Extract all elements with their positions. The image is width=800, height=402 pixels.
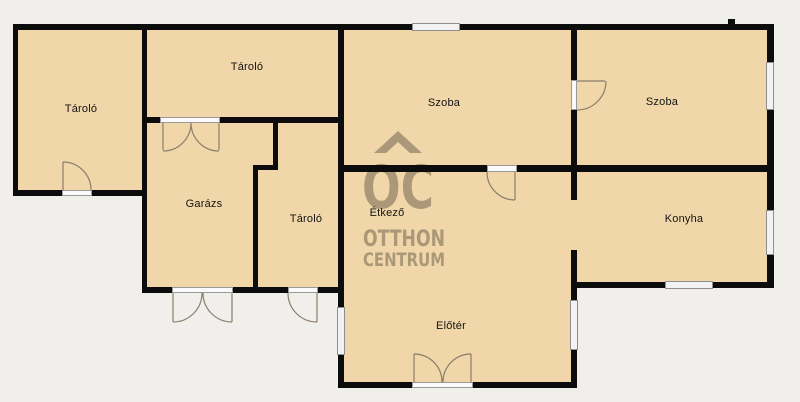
room-label-storage-left: Tároló [65,103,97,115]
overlay-graphics: OC OTTHON CENTRUM [0,0,800,402]
door-dining [487,172,515,200]
door-storage-small-exterior [288,293,317,322]
door-garage-exterior-double [173,293,232,322]
doorway-storage-left [62,190,92,196]
otthon-centrum-watermark: OC OTTHON CENTRUM [362,131,445,271]
room-label-dining: Étkező [370,207,405,219]
window-foyer-left [337,307,345,355]
wall-garage-right-upper [273,117,278,170]
room-label-room-left: Szoba [428,97,460,109]
window-kitchen-bottom [665,281,713,289]
window-foyer-right [570,300,578,350]
wall-top [13,24,773,30]
wall-left [13,24,18,196]
wall-garage-right-lower [253,165,258,293]
room-label-storage-top: Tároló [231,61,263,73]
doorway-garage-inner [160,117,220,123]
door-garage-inner-double [163,123,219,151]
roof-chevron-icon [374,131,422,153]
door-entrance-double [414,354,471,382]
wall-main-horizontal [343,165,773,172]
room-label-garage: Garázs [186,198,223,210]
chimney-marker [728,19,735,24]
wall-divider-left [142,24,147,293]
room-label-room-right: Szoba [646,96,678,108]
room-label-storage-small: Tároló [290,213,322,225]
floorplan-canvas: OC OTTHON CENTRUM [0,0,800,402]
doorway-bedroom-divider [571,80,577,110]
door-bedroom-divider [577,81,606,110]
watermark-line2: CENTRUM [363,249,445,271]
door-storage-left [63,162,91,190]
doorway-garage-exterior [172,287,233,293]
room-label-kitchen: Konyha [665,213,704,225]
window-kitchen-right [766,210,774,255]
wall-kitchen-divider-upper [571,165,577,200]
room-label-foyer: Előtér [436,320,466,332]
doorway-storage-small [288,287,318,293]
doorway-entrance [412,382,473,388]
window-bedroom-left-top [412,23,460,31]
doorway-dining [487,165,517,172]
window-bedroom-right [766,62,774,110]
